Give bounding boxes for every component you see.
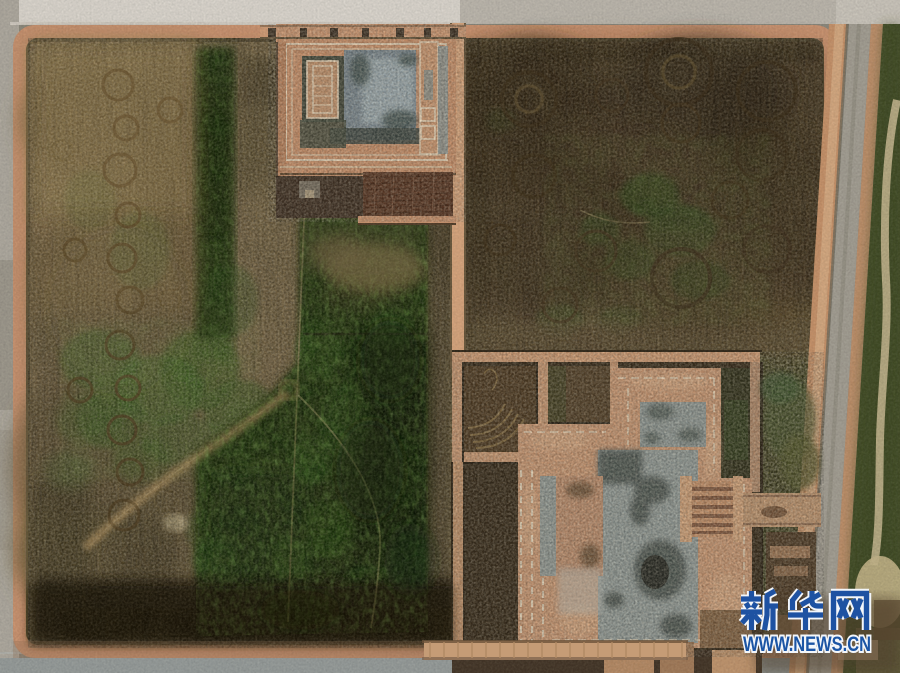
svg-text:WWW.NEWS.CN: WWW.NEWS.CN <box>743 632 871 656</box>
